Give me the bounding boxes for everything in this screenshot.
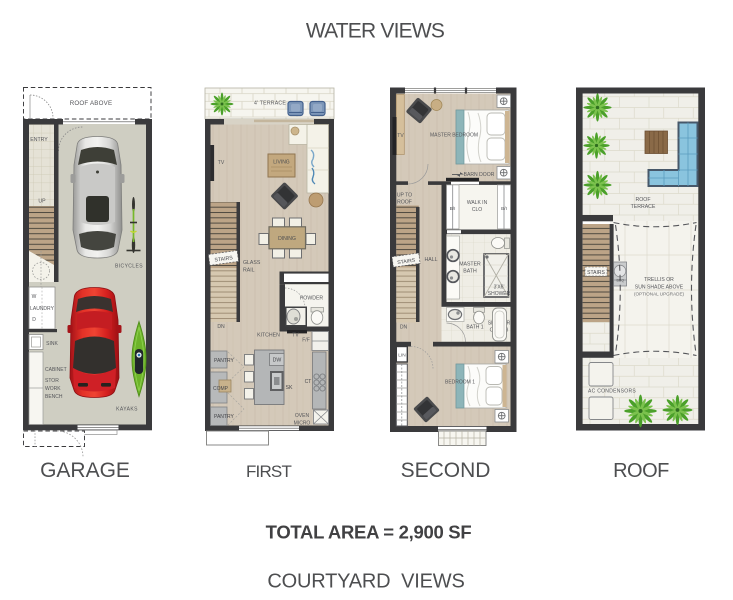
svg-text:OVEN: OVEN	[295, 413, 310, 419]
svg-text:CLO: CLO	[472, 207, 482, 213]
svg-text:MASTER: MASTER	[459, 262, 481, 268]
svg-text:TV: TV	[218, 160, 225, 166]
svg-text:DINING: DINING	[278, 236, 296, 242]
svg-text:LAUNDRY: LAUNDRY	[30, 306, 54, 312]
svg-text:3'X6': 3'X6'	[494, 285, 505, 291]
svg-text:(OPTIONAL UPGRADE): (OPTIONAL UPGRADE)	[634, 292, 685, 297]
svg-text:4' TERRACE: 4' TERRACE	[254, 101, 286, 107]
svg-text:D: D	[32, 317, 36, 323]
svg-text:BARN DOOR: BARN DOOR	[464, 172, 495, 178]
svg-text:COMP: COMP	[213, 386, 229, 392]
svg-text:BATH 1: BATH 1	[466, 325, 483, 331]
svg-text:WORK: WORK	[45, 386, 61, 392]
svg-text:BENCH: BENCH	[45, 394, 63, 400]
svg-text:ROOF ABOVE: ROOF ABOVE	[70, 100, 113, 107]
svg-text:B/I: B/I	[450, 206, 456, 212]
svg-text:ROOF: ROOF	[397, 200, 412, 206]
svg-text:TOTAL AREA = 2,900 SF: TOTAL AREA = 2,900 SF	[266, 522, 472, 543]
svg-text:ENTRY: ENTRY	[30, 137, 48, 143]
svg-text:SUN SHADE ABOVE: SUN SHADE ABOVE	[635, 285, 684, 291]
svg-text:TV: TV	[292, 333, 299, 339]
svg-text:TV: TV	[397, 133, 404, 139]
svg-text:RAIL: RAIL	[243, 268, 255, 274]
svg-text:B/I: B/I	[501, 206, 507, 212]
svg-text:LIVING: LIVING	[273, 160, 290, 166]
svg-text:LIN: LIN	[398, 353, 406, 359]
svg-text:WATER VIEWS: WATER VIEWS	[306, 20, 445, 43]
svg-text:GLASS: GLASS	[243, 260, 261, 266]
svg-text:ROOF: ROOF	[636, 197, 651, 203]
svg-text:KAYAKS: KAYAKS	[116, 407, 138, 413]
svg-text:STOR: STOR	[45, 378, 59, 384]
svg-text:F/F: F/F	[302, 338, 310, 344]
svg-text:FIRST: FIRST	[246, 462, 292, 481]
svg-text:GARAGE: GARAGE	[40, 459, 130, 482]
svg-text:KITCHEN: KITCHEN	[257, 333, 280, 339]
svg-text:UP TO: UP TO	[397, 193, 412, 199]
svg-text:POWDER: POWDER	[300, 296, 324, 302]
svg-text:AC CONDENSORS: AC CONDENSORS	[588, 389, 636, 395]
svg-text:CABINET: CABINET	[45, 367, 67, 373]
svg-text:BEDROOM 1: BEDROOM 1	[445, 380, 475, 386]
svg-text:PANTRY: PANTRY	[214, 414, 234, 420]
svg-text:STAIRS: STAIRS	[587, 270, 605, 276]
svg-text:HALL: HALL	[425, 257, 438, 263]
svg-text:COURTYARD VIEWS: COURTYARD VIEWS	[267, 571, 464, 593]
svg-text:ROOF: ROOF	[613, 460, 669, 482]
svg-text:TERRACE: TERRACE	[631, 204, 656, 210]
svg-text:WALK IN: WALK IN	[467, 200, 488, 206]
svg-text:PANTRY: PANTRY	[214, 358, 234, 364]
svg-text:DN: DN	[400, 325, 408, 331]
svg-text:MASTER BEDROOM: MASTER BEDROOM	[430, 133, 478, 139]
svg-text:DW: DW	[273, 358, 282, 364]
svg-text:TRELLIS OR: TRELLIS OR	[644, 277, 674, 283]
svg-text:SECOND: SECOND	[401, 459, 491, 482]
svg-text:UP: UP	[38, 199, 46, 205]
svg-text:SK: SK	[286, 385, 293, 391]
svg-text:BICYCLES: BICYCLES	[115, 264, 143, 270]
svg-text:MICRO: MICRO	[294, 421, 311, 427]
svg-text:DN: DN	[217, 324, 225, 330]
svg-text:CT: CT	[305, 379, 312, 385]
svg-text:SHOWER: SHOWER	[488, 291, 511, 297]
svg-text:BATH: BATH	[463, 269, 477, 275]
svg-text:SINK: SINK	[46, 341, 58, 347]
svg-text:W: W	[32, 294, 37, 300]
